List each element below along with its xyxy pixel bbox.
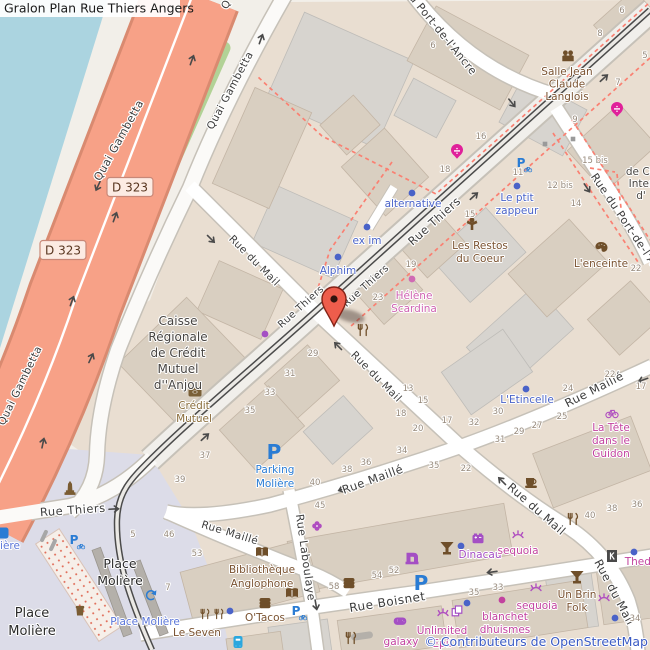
poi-dot (227, 608, 233, 614)
bus-stop-icon (234, 637, 242, 648)
house-number: 6 (619, 6, 624, 16)
road-shield: D 323 (40, 241, 86, 260)
poi-label[interactable]: ière (0, 540, 20, 552)
waste-basket-icon (76, 606, 84, 615)
house-number: 29 (514, 427, 525, 437)
house-number: 25 (557, 412, 568, 422)
map-svg[interactable]: a (0, 0, 650, 650)
house-number: 15 bis (582, 156, 608, 166)
svg-text:P: P (267, 440, 282, 464)
poi-label[interactable]: Thedr (624, 556, 650, 568)
poi-label[interactable]: L'Etincelle (500, 394, 554, 406)
house-number: 5 (130, 530, 135, 540)
house-number: 31 (495, 435, 506, 445)
svg-text:P: P (70, 533, 79, 547)
house-number: 30 (493, 407, 504, 417)
house-number: 32 (469, 418, 480, 428)
house-number: 11 (513, 168, 524, 178)
house-number: 17 (442, 416, 453, 426)
poi-label[interactable]: galaxy (384, 636, 419, 648)
house-number: 7 (615, 78, 620, 88)
poi-label[interactable]: Le ptitzappeur (496, 192, 539, 217)
house-number: 45 (315, 501, 326, 511)
library-icon (257, 548, 268, 556)
utility-marker (571, 137, 575, 141)
poi-label[interactable]: sequoia (497, 545, 538, 557)
house-number: 27 (532, 421, 543, 431)
poi-label[interactable]: Place Molière (110, 616, 180, 628)
house-number: 16 (476, 132, 487, 142)
map-canvas[interactable]: a (0, 0, 650, 650)
poi-dot (464, 600, 470, 606)
house-number: 40 (310, 478, 321, 488)
svg-text:P: P (292, 604, 301, 618)
house-number: 33 (265, 388, 276, 398)
house-number: 6 (430, 41, 435, 51)
road-shield: D 323 (107, 178, 153, 197)
house-number: 12 bis (547, 181, 573, 191)
poi-label[interactable]: Alphim (320, 265, 357, 277)
poi-label[interactable]: alternative (385, 198, 442, 210)
house-number: 38 (607, 504, 618, 514)
poi-label[interactable]: Les Restosdu Coeur (452, 240, 508, 265)
poi-dot (335, 254, 341, 260)
poi-label[interactable]: HélèneScardina (391, 290, 437, 315)
house-number: 46 (164, 530, 175, 540)
house-number: 22 (605, 370, 616, 380)
house-number: 15 (465, 210, 476, 220)
fast-food-icon (344, 579, 354, 588)
house-number: 36 (632, 500, 643, 510)
attribution-link[interactable]: © Contributeurs de OpenStreetMap (424, 634, 648, 649)
poi-dot (499, 597, 505, 603)
poi-dot (262, 331, 268, 337)
poi-dot (523, 386, 529, 392)
poi-label[interactable]: blanchetdhuismes (480, 611, 531, 636)
poi-dot (612, 615, 618, 621)
svg-text:D 323: D 323 (45, 244, 81, 258)
poi-label[interactable]: CréditMutuel (176, 400, 212, 425)
house-number: 8 (597, 29, 602, 39)
house-number: 33 (493, 583, 504, 593)
utility-marker (543, 142, 547, 146)
house-number: 17 (636, 382, 647, 392)
cafe-icon (526, 479, 537, 488)
house-number: 9 (572, 115, 577, 125)
house-number: 40 (585, 511, 596, 521)
house-number: 35 (245, 406, 256, 416)
poi-label[interactable]: La Têtedans leGuidon (592, 422, 630, 460)
house-number: 7 (165, 583, 170, 593)
house-number: 13 (403, 384, 414, 394)
poi-label[interactable]: ex im (353, 235, 382, 247)
house-number: 54 (372, 571, 383, 581)
house-number: 37 (200, 451, 211, 461)
house-number: 29 (308, 349, 319, 359)
house-number: 58 (329, 582, 340, 592)
poi-dot (514, 183, 520, 189)
house-number: 52 (389, 566, 400, 576)
poi-label[interactable]: Le Seven (173, 627, 221, 639)
poi-dot (631, 549, 637, 555)
poi-label[interactable]: Dinacau (459, 549, 502, 561)
house-number: 34 (397, 446, 408, 456)
house-number: 34 (630, 614, 641, 624)
svg-text:D 323: D 323 (112, 181, 148, 195)
house-number: 19 (406, 260, 417, 270)
poi-label[interactable]: L'enceinte (574, 258, 628, 270)
poi-label[interactable]: Salle JeanClaudeLanglois (541, 66, 592, 103)
house-number: 35 (429, 461, 440, 471)
house-number: 36 (361, 458, 372, 468)
poi-dot (364, 224, 370, 230)
house-number: 22 (631, 264, 642, 274)
cinema-icon (608, 551, 617, 562)
battery-shop-icon (473, 534, 483, 543)
house-number: 23 (373, 293, 384, 303)
house-number: 22 (461, 464, 472, 474)
house-number: 18 (396, 409, 407, 419)
house-number: 18 (440, 165, 451, 175)
poi-dot (409, 190, 415, 196)
title-bar: Gralon Plan Rue Thiers Angers (0, 0, 194, 17)
house-number: 35 (469, 588, 480, 598)
page-title: Gralon Plan Rue Thiers Angers (4, 1, 194, 16)
transit-icon-partial (0, 528, 8, 538)
house-number: 24 (563, 384, 574, 394)
parking-icon[interactable]: P (267, 440, 282, 464)
house-number: 53 (192, 549, 203, 559)
poi-dot (409, 276, 415, 282)
house-number: 5 (642, 51, 647, 61)
poi-label[interactable]: O'Tacos (245, 612, 285, 624)
house-number: 31 (285, 369, 296, 379)
house-number: 15 (418, 396, 429, 406)
fast-food-icon (260, 599, 270, 608)
house-number: 14 (571, 199, 582, 209)
house-number: 38 (342, 465, 353, 475)
video-game-shop-icon (394, 618, 406, 624)
house-number: 20 (413, 424, 424, 434)
house-number: 39 (175, 475, 186, 485)
